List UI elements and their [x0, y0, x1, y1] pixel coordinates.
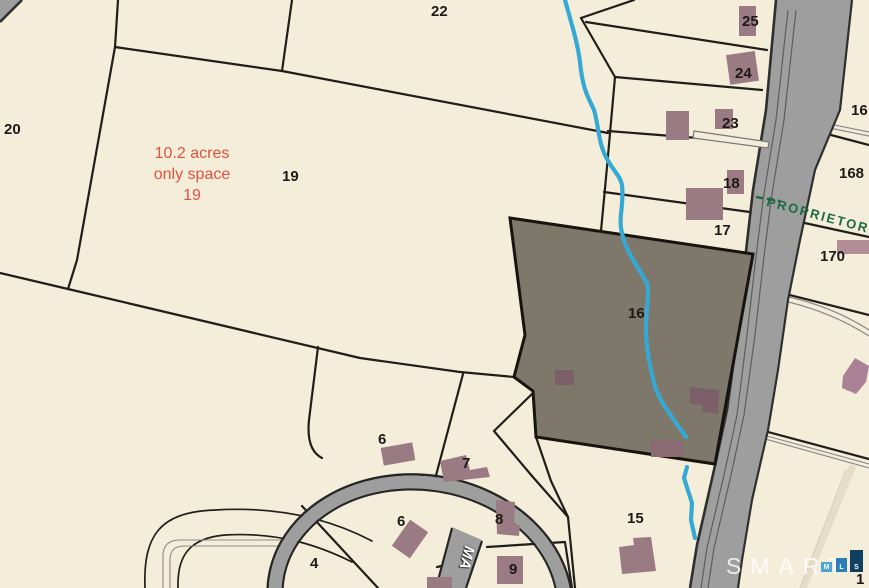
- mls-s-badge: S: [850, 550, 863, 572]
- parcel-label-6-upper: 6: [378, 431, 386, 448]
- parcel-map-canvas[interactable]: 22 25 24 20 23 16 19 18 168 17 170 16 6 …: [0, 0, 869, 588]
- smart-watermark: SMART: [726, 553, 851, 580]
- parcel-label-6-lower: 6: [397, 513, 405, 530]
- annotation-line-2: only space: [118, 164, 266, 185]
- parcel-label-17: 17: [714, 222, 731, 239]
- parcel-label-4: 4: [310, 555, 318, 572]
- parcel-label-24: 24: [735, 65, 752, 82]
- road-sliver-topleft: [0, 0, 22, 22]
- culdesac-ring-road: [251, 455, 589, 588]
- parcel-label-22: 22: [431, 3, 448, 20]
- parcel-label-7: 7: [462, 455, 470, 472]
- annotation-line-3: 19: [118, 185, 266, 206]
- parcel-label-15: 15: [627, 510, 644, 527]
- mls-l-badge: L: [836, 558, 847, 572]
- parcel-label-partial: 1: [856, 571, 864, 588]
- parcel-label-8: 8: [495, 511, 503, 528]
- acreage-annotation: 10.2 acres only space 19: [118, 143, 266, 206]
- parcel-label-18: 18: [723, 175, 740, 192]
- driveway-strip-23: [693, 131, 769, 148]
- parcel-label-25: 25: [742, 13, 759, 30]
- parcel-label-170: 170: [820, 248, 845, 265]
- parcel-label-168: 168: [839, 165, 864, 182]
- mls-m-badge: M: [821, 562, 832, 572]
- parcel-label-23: 23: [722, 115, 739, 132]
- parcel-label-16-east: 16: [851, 102, 868, 119]
- parcel-label-9: 9: [509, 561, 517, 578]
- annotation-line-1: 10.2 acres: [118, 143, 266, 164]
- parcel-label-20: 20: [4, 121, 21, 138]
- map-drawing: [0, 0, 869, 588]
- parcel-label-19: 19: [282, 168, 299, 185]
- parcel-label-16-highlighted: 16: [628, 305, 645, 322]
